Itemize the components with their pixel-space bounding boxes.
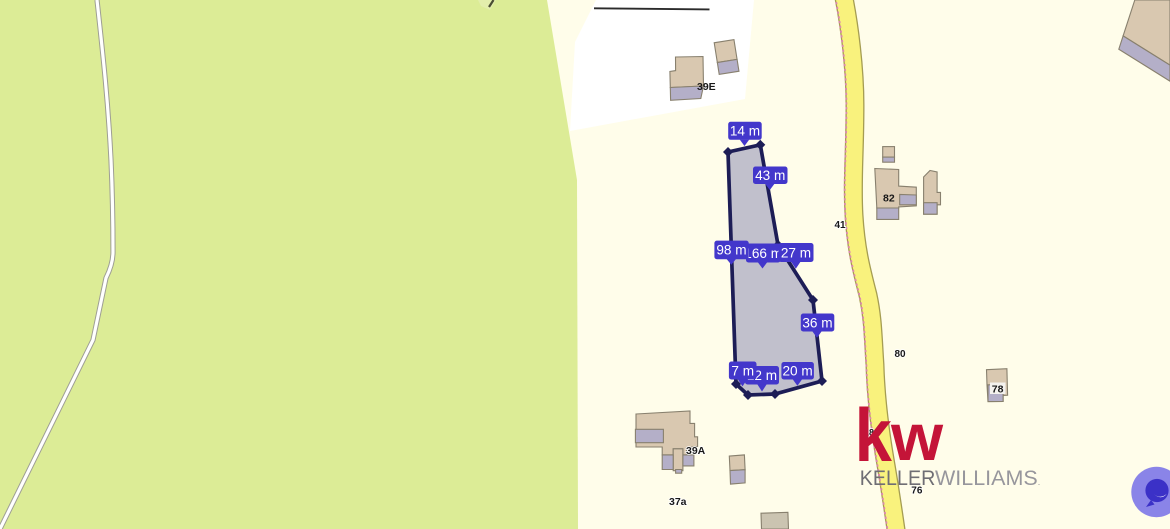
svg-text:w: w [890, 400, 944, 475]
svg-text:39E: 39E [697, 81, 716, 93]
svg-text:37a: 37a [669, 496, 687, 508]
svg-text:166 m: 166 m [744, 246, 782, 261]
svg-text:41: 41 [835, 220, 847, 231]
svg-text:KELLER: KELLER [860, 466, 936, 490]
svg-text:27 m: 27 m [781, 245, 811, 260]
svg-text:36 m: 36 m [802, 315, 832, 330]
svg-text:39A: 39A [686, 445, 706, 457]
svg-text:82: 82 [883, 193, 895, 205]
svg-text:78: 78 [992, 383, 1004, 395]
svg-text:43 m: 43 m [755, 168, 785, 183]
svg-text:98 m: 98 m [716, 243, 746, 258]
svg-text:80: 80 [895, 349, 907, 360]
svg-text:7 m: 7 m [731, 363, 754, 378]
svg-text:WILLIAMS.: WILLIAMS. [935, 466, 1040, 490]
svg-text:14 m: 14 m [730, 124, 760, 139]
svg-text:20 m: 20 m [782, 364, 812, 379]
